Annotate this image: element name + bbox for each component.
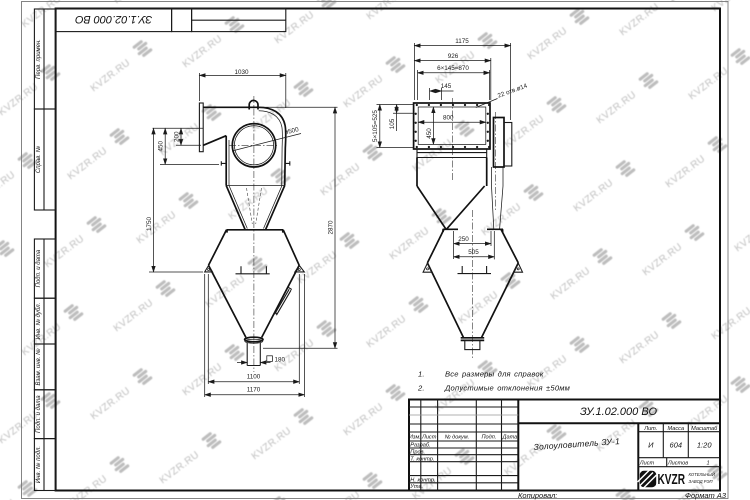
svg-text:Перв. примен.: Перв. примен. bbox=[36, 39, 42, 79]
svg-text:ЗАВОД РЭП: ЗАВОД РЭП bbox=[689, 479, 714, 484]
svg-text:Разраб.: Разраб. bbox=[410, 443, 430, 449]
svg-text:180: 180 bbox=[275, 357, 286, 364]
svg-text:5×105=525: 5×105=525 bbox=[372, 110, 379, 142]
svg-text:1175: 1175 bbox=[455, 38, 469, 45]
svg-text:Дата: Дата bbox=[502, 435, 518, 441]
svg-text:Лит.: Лит. bbox=[643, 426, 657, 432]
svg-text:Лист: Лист bbox=[421, 435, 437, 441]
svg-text:Все размеры для справок: Все размеры для справок bbox=[445, 370, 544, 379]
svg-text:Инв. № подл.: Инв. № подл. bbox=[35, 446, 42, 483]
svg-text:2.: 2. bbox=[417, 384, 425, 393]
svg-text:Изм.: Изм. bbox=[409, 435, 421, 441]
svg-text:250: 250 bbox=[458, 236, 469, 243]
svg-text:Масштаб: Масштаб bbox=[691, 426, 718, 432]
svg-text:1: 1 bbox=[706, 461, 709, 467]
svg-text:Допустимые отклонения ±50мм: Допустимые отклонения ±50мм bbox=[444, 384, 571, 393]
svg-text:Подп. и дата: Подп. и дата bbox=[36, 395, 42, 433]
svg-text:Листов: Листов bbox=[667, 461, 688, 467]
svg-text:1750: 1750 bbox=[146, 217, 153, 232]
svg-text:105: 105 bbox=[389, 118, 396, 129]
svg-text:1170: 1170 bbox=[247, 387, 261, 394]
svg-text:200: 200 bbox=[173, 131, 180, 142]
svg-text:604: 604 bbox=[670, 441, 683, 450]
svg-text:450: 450 bbox=[426, 128, 433, 139]
svg-text:Лист: Лист bbox=[639, 461, 655, 467]
svg-text:450: 450 bbox=[158, 141, 165, 152]
svg-text:Утв.: Утв. bbox=[409, 484, 423, 490]
svg-text:№ докум.: № докум. bbox=[445, 435, 470, 441]
svg-text:Формат А3: Формат А3 bbox=[685, 491, 727, 500]
svg-text:1:20: 1:20 bbox=[697, 441, 712, 450]
svg-text:145: 145 bbox=[441, 83, 452, 90]
svg-text:Взам. инв. №: Взам. инв. № bbox=[35, 348, 42, 386]
svg-text:505: 505 bbox=[468, 249, 479, 256]
svg-text:Н. контр.: Н. контр. bbox=[410, 477, 435, 483]
svg-text:Подп.: Подп. bbox=[481, 435, 496, 441]
svg-text:2870: 2870 bbox=[327, 220, 334, 235]
svg-text:Масса: Масса bbox=[668, 426, 685, 432]
svg-text:1100: 1100 bbox=[247, 374, 261, 381]
svg-text:Подп. и дата: Подп. и дата bbox=[36, 249, 42, 287]
svg-text:Пров.: Пров. bbox=[410, 449, 425, 455]
svg-text:1.: 1. bbox=[418, 370, 425, 379]
svg-text:926: 926 bbox=[448, 53, 459, 60]
svg-text:КОТЕЛЬНЫЙ: КОТЕЛЬНЫЙ bbox=[689, 472, 715, 477]
svg-text:Т. контр.: Т. контр. bbox=[410, 456, 434, 462]
svg-text:Копировал:: Копировал: bbox=[518, 491, 557, 500]
svg-text:800: 800 bbox=[443, 114, 454, 121]
svg-text:ЗУ.1.02.000 ВО: ЗУ.1.02.000 ВО bbox=[75, 13, 152, 25]
svg-text:Инв. № дубл.: Инв. № дубл. bbox=[35, 303, 42, 340]
svg-text:И: И bbox=[648, 441, 654, 450]
svg-text:ЗУ.1.02.000 ВО: ЗУ.1.02.000 ВО bbox=[580, 406, 657, 418]
svg-text:6×145=870: 6×145=870 bbox=[437, 65, 469, 72]
svg-text:1030: 1030 bbox=[234, 69, 249, 76]
svg-text:Справ. №: Справ. № bbox=[35, 145, 42, 173]
svg-text:KVZR: KVZR bbox=[658, 471, 686, 488]
